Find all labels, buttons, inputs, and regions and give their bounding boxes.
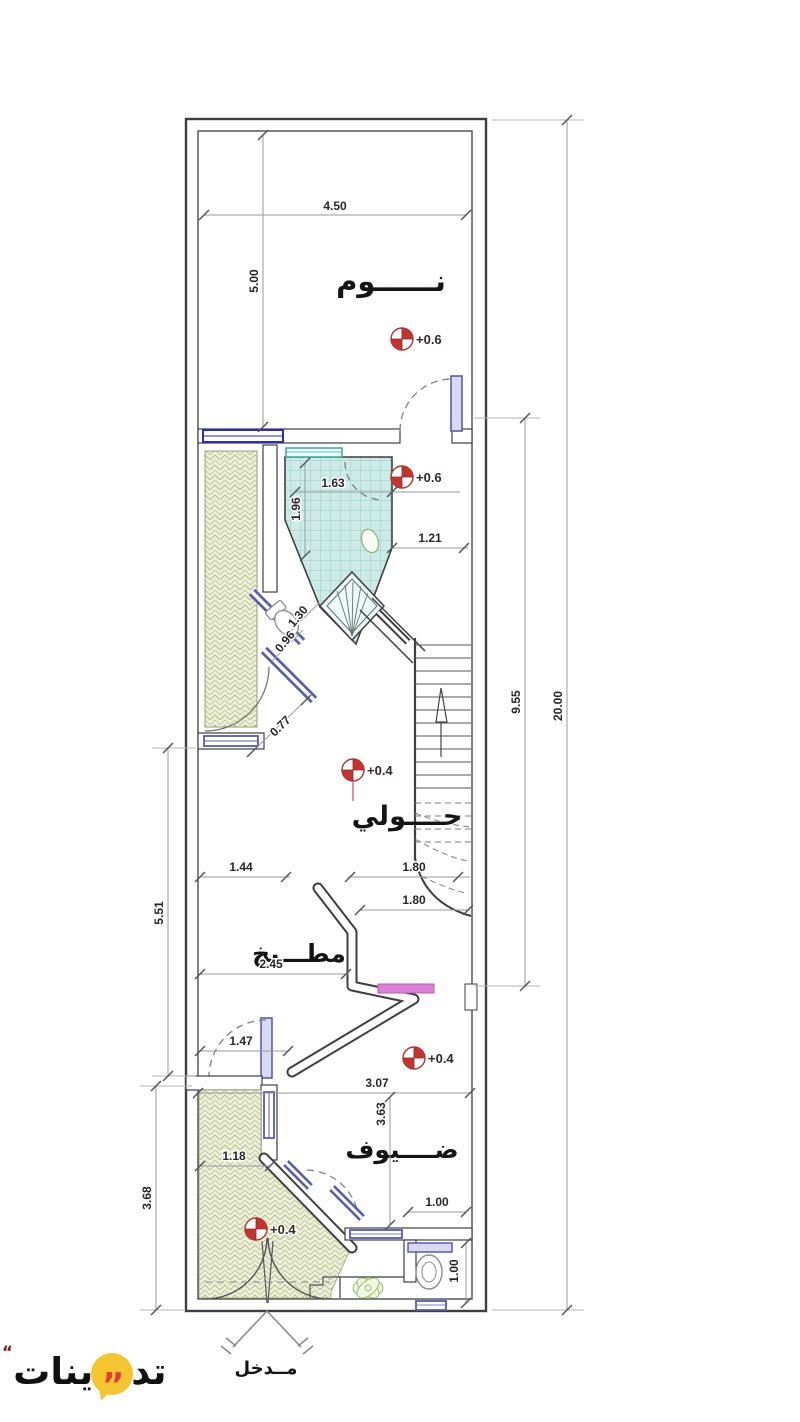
- tadwinat-logo: تد ,, ينات ,,: [4, 1338, 167, 1404]
- logo-text-left: ينات: [13, 1350, 93, 1393]
- wc-window: [416, 1301, 446, 1310]
- wall-opening: [465, 984, 477, 1010]
- wc-toilet-icon: [416, 1255, 442, 1289]
- dim-kitchen-width: 2.45: [259, 957, 283, 971]
- dim-stairs-span: 9.55: [509, 690, 523, 714]
- room-label-bedroom: نــــــوم: [336, 264, 446, 298]
- level-label-entrance: +0.4: [270, 1222, 296, 1237]
- dim-left-mid: 5.51: [152, 901, 166, 925]
- dim-wc-height: 1.00: [447, 1259, 461, 1283]
- level-label-bathroom: +0.6: [416, 470, 442, 485]
- bathroom-window: [286, 448, 342, 457]
- dim-left-bottom: 3.68: [140, 1186, 154, 1210]
- level-marker-entrance: [245, 1218, 267, 1240]
- logo-trademark-icon: ,,: [4, 1344, 12, 1363]
- dim-kitchen-door: 1.47: [229, 1034, 253, 1048]
- level-marker-bathroom: [391, 466, 413, 488]
- side-yard-hatch: [205, 451, 257, 727]
- logo-text-right: تد: [131, 1350, 166, 1393]
- entrance-arrow: [221, 1311, 313, 1354]
- wc-cistern: [408, 1243, 452, 1252]
- dim-total-length: 20.00: [551, 691, 565, 721]
- side-yard-right-wall: [263, 445, 277, 592]
- floor-plan-drawing: نــــــوم +0.6 +0.6: [0, 0, 800, 1422]
- dim-entry-width: 1.18: [222, 1149, 246, 1163]
- dim-landing-a: 1.80: [402, 860, 426, 874]
- kitchen-door-leaf: [261, 1018, 272, 1078]
- room-label-entrance: مــدخل: [235, 1358, 298, 1379]
- floor-plan-page: نــــــوم +0.6 +0.6: [0, 0, 800, 1422]
- logo-quotes-icon: ,,: [103, 1353, 121, 1384]
- level-label-dining: +0.4: [428, 1051, 454, 1066]
- dim-kitchen-left: 1.44: [229, 860, 253, 874]
- entrance-top-wall: [186, 1076, 262, 1090]
- dim-landing-b: 1.80: [402, 893, 426, 907]
- room-label-hall: حــــولي: [352, 801, 463, 832]
- level-marker-bedroom: [391, 328, 413, 350]
- bedroom-door-leaf: [451, 376, 462, 431]
- level-label-hall: +0.4: [367, 763, 393, 778]
- level-label-bedroom: +0.6: [416, 332, 442, 347]
- dim-guests-width: 3.07: [365, 1076, 389, 1090]
- dim-bedroom-height: 5.00: [247, 269, 261, 293]
- dim-guests-height: 3.63: [374, 1102, 388, 1126]
- level-marker-hall: [342, 759, 364, 781]
- dim-bath-side: 1.21: [418, 531, 442, 545]
- dim-bedroom-width: 4.50: [323, 199, 347, 213]
- dim-wc-width: 1.00: [425, 1195, 449, 1209]
- room-label-guests: ضــــيوف: [345, 1135, 458, 1165]
- kitchen-counter: [378, 984, 434, 993]
- dim-bath-width: 1.63: [321, 476, 345, 490]
- level-marker-dining: [403, 1047, 425, 1069]
- logo-speech-bubble-icon: ,,: [91, 1353, 133, 1395]
- dim-bath-height: 1.96: [289, 497, 303, 521]
